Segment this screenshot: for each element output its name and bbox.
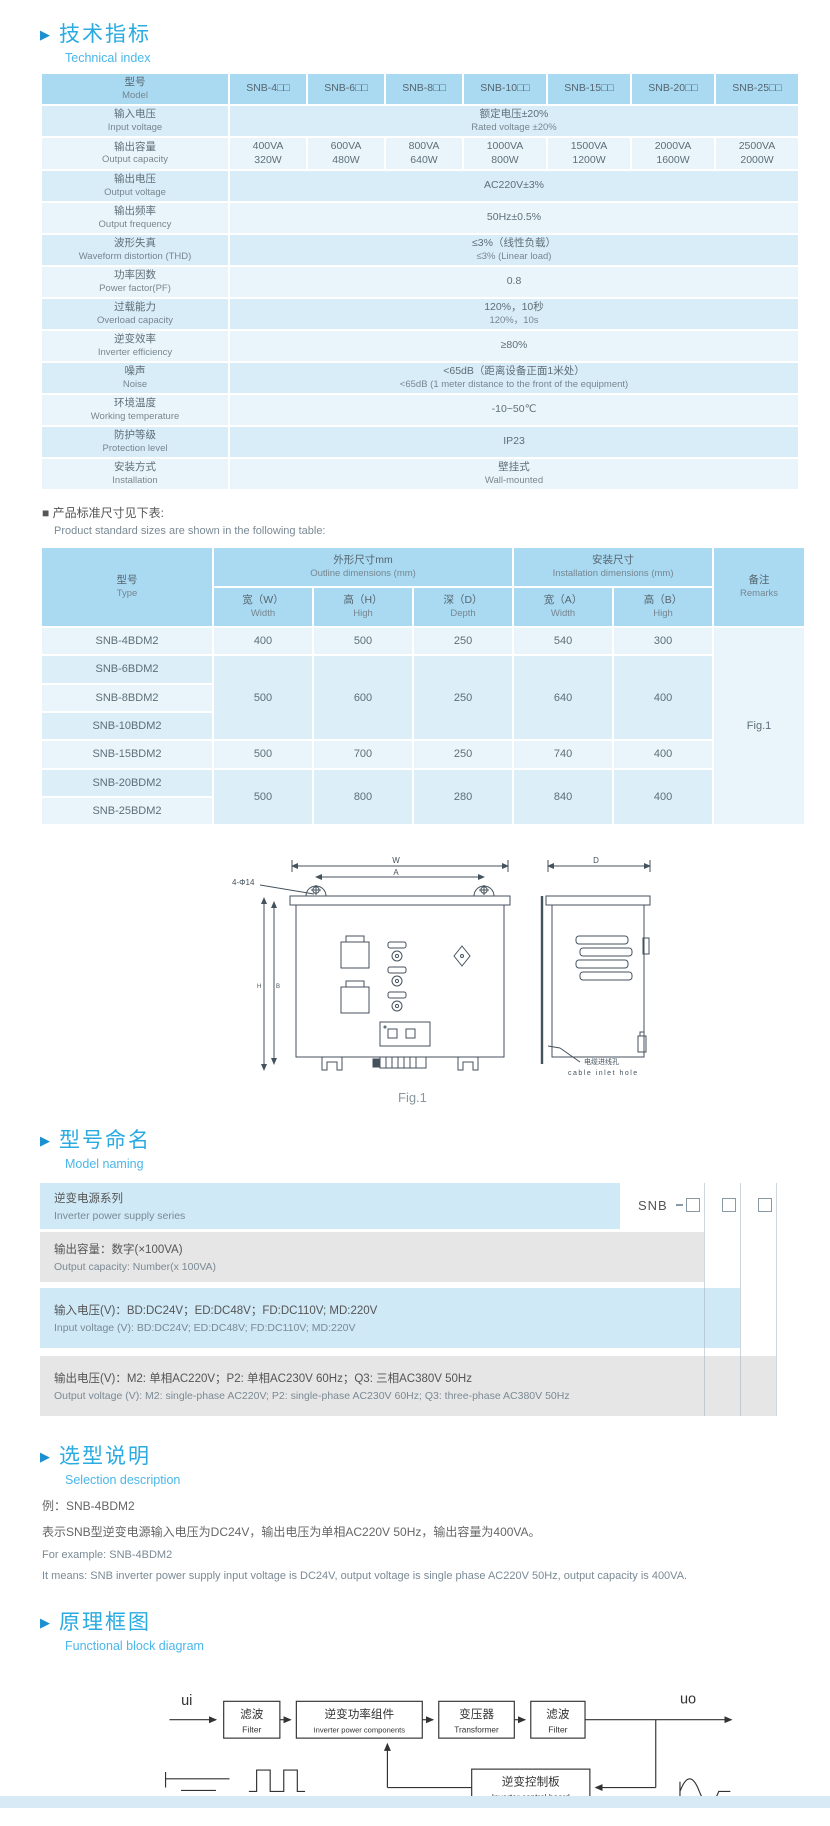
section-title-zh: 型号命名 [59,1129,151,1152]
naming-divider-line [704,1183,705,1416]
dim-value: 500 [214,656,312,739]
section-title-en: Technical index [65,51,790,65]
input-signal-label: ui [181,1693,192,1709]
spec-row-label: 输出频率Output frequency [42,203,228,233]
technical-spec-table: 型号Model SNB-4□□ SNB-6□□ SNB-8□□ SNB-10□□… [40,72,800,491]
section-title-en: Functional block diagram [65,1639,790,1653]
cabinet-technical-drawing: W A D 4-Φ14 H B 电缆进线孔 cable inlet hole F… [230,850,790,1110]
spec-row-noise: 噪声Noise <65dB（距离设备正面1米处）<65dB (1 meter d… [42,363,798,393]
spec-row-label: 功率因数Power factor(PF) [42,267,228,297]
section-title-zh: 原理框图 [59,1611,151,1634]
section-arrow-icon: ▶ [40,27,50,42]
dim-value: 840 [514,770,612,825]
dim-type-header: 型号Type [42,548,212,626]
spec-row-label: 输入电压Input voltage [42,106,228,136]
spec-value: 120%，10秒120%，10s [230,299,798,329]
dim-value: 250 [414,628,512,654]
spec-header-row: 型号Model SNB-4□□ SNB-6□□ SNB-8□□ SNB-10□□… [42,74,798,104]
spec-value: 0.8 [230,267,798,297]
dim-value: 800 [314,770,412,825]
model-code-snb: SNB [638,1198,668,1213]
spec-value: 600VA480W [308,138,384,169]
spec-row-inverter-efficiency: 逆变效率Inverter efficiency ≥80% [42,331,798,361]
spec-row-label: 安装方式Installation [42,459,228,489]
spec-value: IP23 [230,427,798,457]
dim-type: SNB-20BDM2 [42,770,212,796]
table-row: SNB-15BDM2 500 700 250 740 400 [42,741,804,767]
table-row: SNB-20BDM2 500 800 280 840 400 [42,770,804,796]
dim-label-w: W [392,856,400,865]
figure-caption: Fig.1 [398,1090,427,1105]
spec-model: SNB-15□□ [548,74,630,104]
dim-value: 700 [314,741,412,767]
spec-row-label: 噪声Noise [42,363,228,393]
section-arrow-icon: ▶ [40,1615,50,1630]
dim-value: 500 [314,628,412,654]
spec-row-label: 过载能力Overload capacity [42,299,228,329]
dim-value: 400 [214,628,312,654]
dim-value: 640 [514,656,612,739]
spec-row-protection-level: 防护等级Protection level IP23 [42,427,798,457]
table-row: SNB-6BDM2 500 600 250 640 400 [42,656,804,682]
selection-meaning-en: It means: SNB inverter power supply inpu… [42,1570,790,1582]
table-row: SNB-4BDM2 400 500 250 540 300 Fig.1 [42,628,804,654]
dim-label-b: B [276,984,280,990]
section-title-en: Model naming [65,1157,790,1171]
spec-model: SNB-6□□ [308,74,384,104]
dim-value: 400 [614,656,712,739]
spec-row-output-capacity: 输出容量Output capacity 400VA320W 600VA480W … [42,138,798,169]
dim-value: 250 [414,741,512,767]
spec-row-label: 环境温度Working temperature [42,395,228,425]
spec-model: SNB-20□□ [632,74,714,104]
dim-subheader-b: 高（B）High [614,588,712,626]
section-title-en: Selection description [65,1473,790,1487]
dim-subheader-a: 宽（A）Width [514,588,612,626]
dim-type: SNB-25BDM2 [42,798,212,824]
section-title-zh: 选型说明 [59,1445,151,1468]
spec-value: ≥80% [230,331,798,361]
dim-subheader-w: 宽（W）Width [214,588,312,626]
section-arrow-icon: ▶ [40,1449,50,1464]
section-block-diagram: ▶原理框图 Functional block diagram [40,1606,790,1653]
block-filter1-zh: 滤波 [240,1708,264,1721]
dim-value: 740 [514,741,612,767]
block-transformer-zh: 变压器 [459,1707,494,1721]
spec-value: 额定电压±20%Rated voltage ±20% [230,106,798,136]
spec-model: SNB-8□□ [386,74,462,104]
spec-value: 800VA640W [386,138,462,169]
dim-value: 600 [314,656,412,739]
spec-row-label: 逆变效率Inverter efficiency [42,331,228,361]
drawing-labels: W A D 4-Φ14 H B 电缆进线孔 cable inlet hole F… [232,856,639,1105]
block-filter2-en: Filter [548,1724,567,1734]
spec-value: -10~50℃ [230,395,798,425]
section-title-zh: 技术指标 [59,23,151,46]
section-arrow-icon: ▶ [40,1133,50,1148]
spec-row-power-factor: 功率因数Power factor(PF) 0.8 [42,267,798,297]
dim-label-d: D [593,856,599,865]
dim-value: 400 [614,770,712,825]
spec-value: 400VA320W [230,138,306,169]
section-selection-description: ▶选型说明 Selection description [40,1440,790,1487]
section-model-naming: ▶型号命名 Model naming [40,1124,790,1171]
side-view [542,860,650,1064]
naming-row-input-voltage: 输入电压(V)：BD:DC24V；ED:DC48V；FD:DC110V; MD:… [40,1288,740,1348]
block-filter1-en: Filter [242,1724,261,1734]
spec-value: 2000VA1600W [632,138,714,169]
dim-label-a: A [393,868,399,877]
spec-model: SNB-10□□ [464,74,546,104]
naming-row-output-voltage: 输出电压(V)：M2: 单相AC220V；P2: 单相AC230V 60Hz；Q… [40,1356,776,1416]
selection-meaning-zh: 表示SNB型逆变电源输入电压为DC24V，输出电压为单相AC220V 50Hz，… [42,1523,790,1540]
spec-value: AC220V±3% [230,171,798,201]
size-note: ■ 产品标准尺寸见下表: Product standard sizes are … [42,504,790,537]
spec-value: ≤3%（线性负载）≤3% (Linear load) [230,235,798,265]
section-technical-index: ▶技术指标 Technical index [40,18,790,65]
naming-divider-line [776,1183,777,1416]
footer-band [0,1796,830,1808]
dim-type: SNB-10BDM2 [42,713,212,739]
front-view [260,860,510,1070]
spec-value: 1000VA800W [464,138,546,169]
spec-model: SNB-25□□ [716,74,798,104]
selection-example-en: For example: SNB-4BDM2 [42,1549,790,1561]
page-content: ▶技术指标 Technical index 型号Model SNB-4□□ SN… [0,0,830,1826]
dim-value: 250 [414,656,512,739]
naming-divider-line [740,1183,741,1416]
spec-model: SNB-4□□ [230,74,306,104]
dim-type: SNB-4BDM2 [42,628,212,654]
dim-value: 500 [214,770,312,825]
spec-row-input-voltage: 输入电压Input voltage 额定电压±20%Rated voltage … [42,106,798,136]
spec-value: 50Hz±0.5% [230,203,798,233]
naming-row-output-capacity: 输出容量：数字(×100VA) Output capacity: Number(… [40,1232,704,1282]
dim-install-group-header: 安装尺寸Installation dimensions (mm) [514,548,712,586]
model-code-box [758,1198,772,1212]
spec-row-waveform-distortion: 波形失真Waveform distortion (THD) ≤3%（线性负载）≤… [42,235,798,265]
model-code-dash [676,1204,683,1206]
dimension-table: 型号Type 外形尺寸mmOutline dimensions (mm) 安装尺… [40,546,806,826]
selection-example-zh: 例：SNB-4BDM2 [42,1497,790,1514]
spec-row-output-voltage: 输出电压Output voltage AC220V±3% [42,171,798,201]
spec-row-label: 波形失真Waveform distortion (THD) [42,235,228,265]
dim-outline-group-header: 外形尺寸mmOutline dimensions (mm) [214,548,512,586]
block-transformer-en: Transformer [454,1725,499,1734]
spec-row-label: 防护等级Protection level [42,427,228,457]
spec-row-label: 输出容量Output capacity [42,138,228,169]
block-control-board-zh: 逆变控制板 [502,1775,560,1789]
dim-label-h: H [257,984,261,990]
block-inverter-power-zh: 逆变功率组件 [324,1707,394,1721]
dim-value: 400 [614,741,712,767]
dim-remarks-header: 备注Remarks [714,548,804,626]
model-naming-diagram: SNB 逆变电源系列 Inverter power supply series … [40,1183,790,1416]
block-filter2-zh: 滤波 [546,1708,570,1721]
spec-model-label: 型号Model [42,74,228,104]
size-note-en: Product standard sizes are shown in the … [54,525,790,537]
dim-subheader-d: 深（D）Depth [414,588,512,626]
dim-value: 540 [514,628,612,654]
model-code-box [686,1198,700,1212]
spec-value: 2500VA2000W [716,138,798,169]
cable-inlet-label-en: cable inlet hole [568,1070,639,1077]
cable-inlet-label-zh: 电缆进线孔 [584,1057,619,1066]
spec-value: <65dB（距离设备正面1米处）<65dB (1 meter distance … [230,363,798,393]
selection-text: 例：SNB-4BDM2 表示SNB型逆变电源输入电压为DC24V，输出电压为单相… [42,1497,790,1582]
spec-row-output-frequency: 输出频率Output frequency 50Hz±0.5% [42,203,798,233]
dim-header-row-1: 型号Type 外形尺寸mmOutline dimensions (mm) 安装尺… [42,548,804,586]
dim-subheader-h: 高（H）High [314,588,412,626]
spec-row-overload-capacity: 过载能力Overload capacity 120%，10秒120%，10s [42,299,798,329]
dim-type: SNB-8BDM2 [42,685,212,711]
dim-type: SNB-6BDM2 [42,656,212,682]
dim-value: 300 [614,628,712,654]
output-signal-label: uo [680,1691,696,1707]
model-code-box [722,1198,736,1212]
spec-row-installation: 安装方式Installation 壁挂式Wall-mounted [42,459,798,489]
spec-value: 1500VA1200W [548,138,630,169]
dim-remark-cell: Fig.1 [714,628,804,824]
dim-type: SNB-15BDM2 [42,741,212,767]
size-note-zh: ■ 产品标准尺寸见下表: [42,504,790,521]
dim-value: 280 [414,770,512,825]
naming-row-series: 逆变电源系列 Inverter power supply series [40,1183,620,1229]
spec-value: 壁挂式Wall-mounted [230,459,798,489]
holes-label: 4-Φ14 [232,878,255,887]
block-inverter-power-en: Inverter power components [314,1725,406,1734]
spec-row-working-temperature: 环境温度Working temperature -10~50℃ [42,395,798,425]
dim-value: 500 [214,741,312,767]
spec-row-label: 输出电压Output voltage [42,171,228,201]
